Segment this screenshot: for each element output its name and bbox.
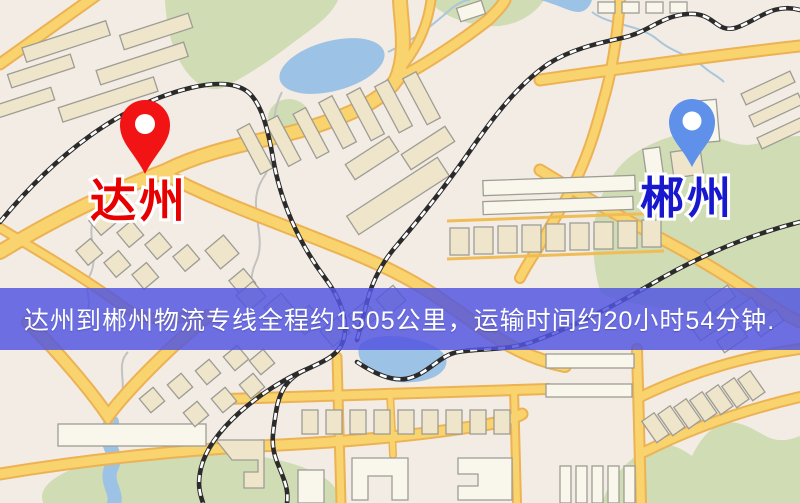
destination-city-label: 郴州 [640, 174, 734, 223]
route-info-banner: 达州到郴州物流专线全程约1505公里，运输时间约20小时54分钟. [0, 288, 800, 350]
route-info-text: 达州到郴州物流专线全程约1505公里，运输时间约20小时54分钟. [0, 301, 775, 337]
destination-pin-hole [683, 112, 702, 131]
street-map: 达州 郴州 [0, 0, 800, 503]
origin-pin-hole [135, 114, 155, 134]
map-image: 达州 郴州 达州到郴州物流专线全程约1505公里，运输时间约20小时54分钟. [0, 0, 800, 503]
origin-city-label: 达州 [90, 176, 188, 227]
